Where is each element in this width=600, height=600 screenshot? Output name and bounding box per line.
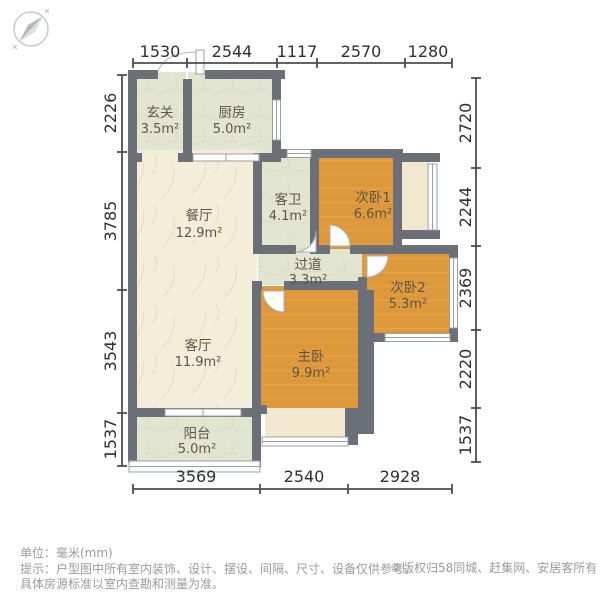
disclaimer-line1: 提示：户型图中所有室内装饰、设计、摆设、间隔、尺寸、设备仅供参考。 xyxy=(20,562,416,576)
entry-area: 3.5m² xyxy=(141,122,180,137)
dining-name: 餐厅 xyxy=(186,208,213,224)
bedroom2-name: 次卧2 xyxy=(390,280,426,296)
kitchen-name: 厨房 xyxy=(219,105,246,121)
living-name: 客厅 xyxy=(185,337,212,354)
unit-note: 单位：毫米(mm) xyxy=(20,546,113,560)
kitchen-area: 5.0m² xyxy=(213,122,252,137)
disclaimer-line2: 具体房源标准以室内查勘和测量为准。 xyxy=(20,577,224,591)
dim-left-2: 3785 xyxy=(101,201,120,242)
dining-area: 12.9m² xyxy=(176,226,223,241)
bedroom2-area: 5.3m² xyxy=(389,297,428,312)
dim-right-3: 2369 xyxy=(456,268,475,309)
dim-right-4: 2220 xyxy=(456,349,475,390)
hallway-name: 过道 xyxy=(295,257,322,273)
room-floors xyxy=(133,72,453,465)
dim-top-2: 2544 xyxy=(212,42,253,61)
balcony-area: 5.0m² xyxy=(178,442,217,457)
dim-top-1: 1530 xyxy=(140,42,181,61)
bedroom1-area: 6.6m² xyxy=(354,207,393,222)
dim-left-3: 3543 xyxy=(101,331,120,372)
master-area: 9.9m² xyxy=(292,366,331,381)
bedroom1-name: 次卧1 xyxy=(355,190,391,206)
master-name: 主卧 xyxy=(298,349,325,365)
living-area: 11.9m² xyxy=(175,355,222,370)
compass-north-icon xyxy=(13,9,49,49)
dim-right-5: 1537 xyxy=(456,415,475,456)
guest-bath-name: 客卫 xyxy=(275,191,302,208)
dim-right-2: 2244 xyxy=(456,187,475,228)
floor-plan: 玄关 3.5m² 厨房 5.0m² 餐厅 12.9m² 客卫 4.1m² 次卧1… xyxy=(0,0,600,600)
dim-top-3: 1117 xyxy=(277,42,318,61)
dim-bottom-1: 3569 xyxy=(176,467,217,486)
dim-left-4: 1537 xyxy=(101,419,120,460)
entry-name: 玄关 xyxy=(147,104,174,121)
balcony-name: 阳台 xyxy=(184,426,211,442)
dim-top-5: 1280 xyxy=(408,42,449,61)
dim-right-1: 2720 xyxy=(456,103,475,144)
dim-top-4: 2570 xyxy=(341,42,382,61)
hallway-area: 3.3m² xyxy=(289,273,328,288)
dim-bottom-2: 2540 xyxy=(284,467,325,486)
bay-window-1-floor xyxy=(402,160,429,232)
bay-window-master-floor xyxy=(265,408,346,439)
dim-left-1: 2226 xyxy=(101,93,120,134)
entry-door-leaf xyxy=(196,50,204,74)
copyright-note: ©版权归58同城、赶集网、安居客所有 xyxy=(390,561,597,575)
guest-bath-area: 4.1m² xyxy=(269,209,308,224)
dining-living-floor xyxy=(133,150,257,412)
dim-bottom-3: 2928 xyxy=(380,467,421,486)
